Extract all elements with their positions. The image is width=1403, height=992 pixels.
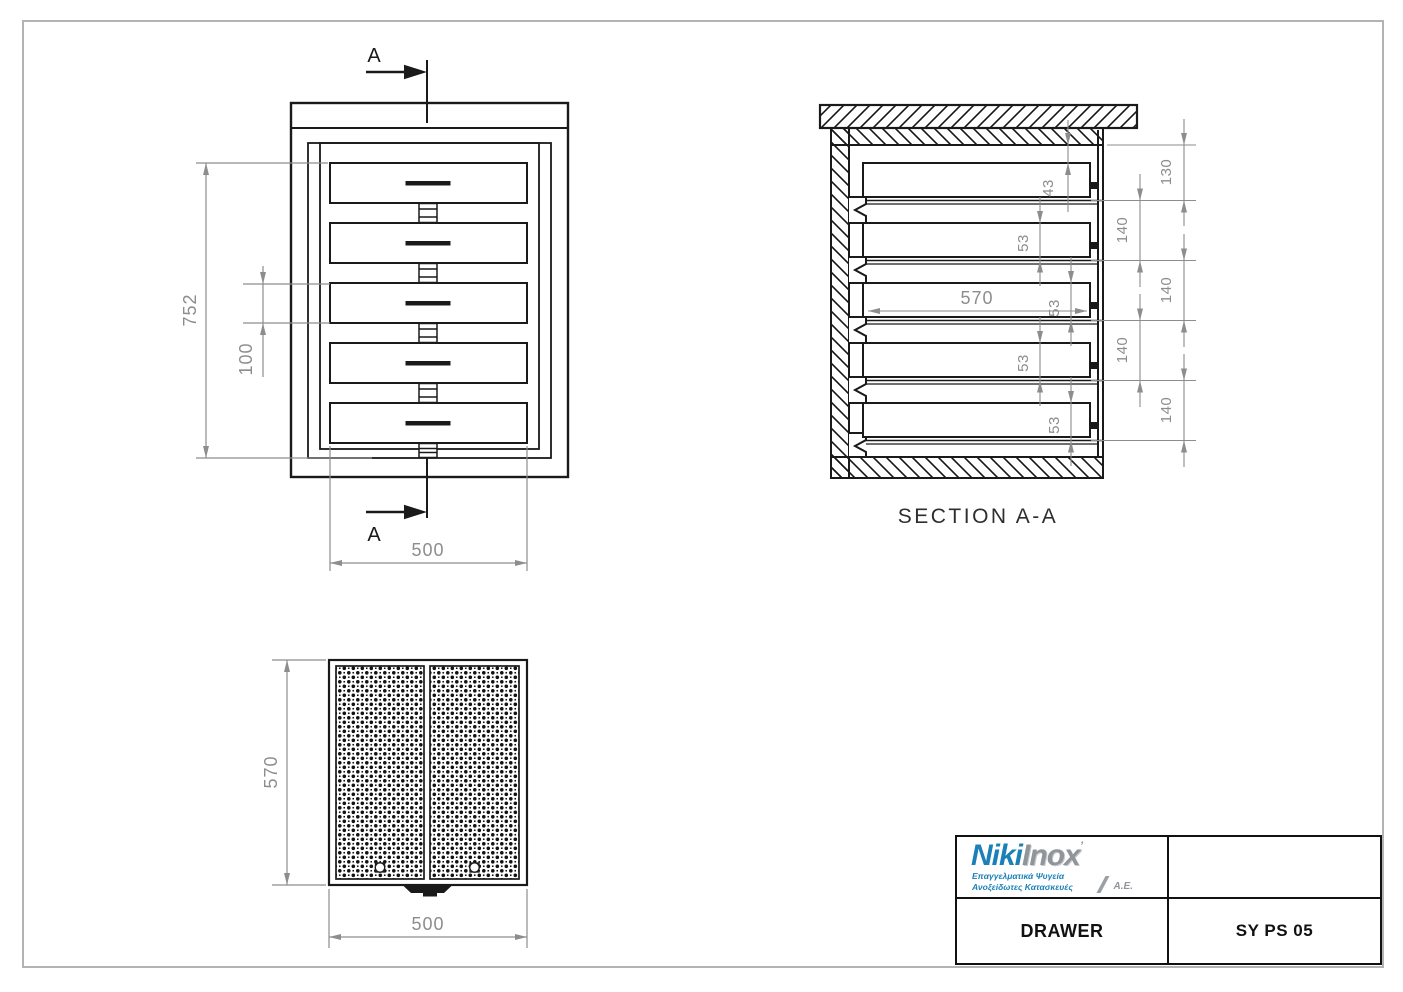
dim-pitch: 140 (1158, 277, 1175, 304)
drawer-stop (1091, 182, 1098, 189)
dim-top-depth: 570 (261, 755, 281, 788)
logo-subtitle-line1: Επαγγελματικά Ψυγεία (972, 871, 1064, 881)
cut-letter-top: A (367, 45, 381, 67)
drawing-sheet: A A 752 100 500 (0, 0, 1403, 992)
dim-drawer-height: 53 (1015, 234, 1032, 252)
section-arrow-icon (404, 505, 427, 519)
dim-drawer-height: 53 (1015, 354, 1032, 372)
dim-drawer-height: 53 (1046, 416, 1063, 434)
dim-pitch: 140 (1114, 337, 1131, 364)
drawer-handle (406, 181, 451, 186)
top-view-handle (403, 886, 452, 894)
logo-trademark: ’ (1080, 839, 1082, 853)
dim-overall-height: 752 (180, 293, 200, 326)
logo-text-niki: Niki (971, 839, 1022, 872)
drawer-handle (406, 421, 451, 426)
top-view (329, 660, 527, 897)
dim-pitch: 140 (1158, 397, 1175, 424)
drawer-handle (406, 241, 451, 246)
drawer-handle (406, 301, 451, 306)
logo-company-suffix: Α.Ε. (1114, 881, 1133, 892)
dim-top-gap: 43 (1040, 179, 1057, 197)
dim-pitch: 130 (1158, 159, 1175, 186)
logo-subtitle: Επαγγελματικά Ψυγεία Ανοξείδωτες Κατασκε… (972, 871, 1073, 892)
logo-cell: NikiInox’ Επαγγελματικά Ψυγεία Ανοξείδωτ… (957, 837, 1167, 897)
nikiinox-logo: NikiInox’ (971, 839, 1082, 873)
drawer-stop (1091, 362, 1098, 369)
cut-letter-bottom: A (367, 524, 381, 546)
title-block: NikiInox’ Επαγγελματικά Ψυγεία Ανοξείδωτ… (955, 835, 1382, 965)
section-top-wall (831, 128, 1103, 145)
section-title: SECTION A-A (898, 505, 1059, 528)
dim-drawer-height: 53 (1046, 299, 1063, 317)
perforated-panel-left (336, 666, 424, 879)
logo-text-inox: Inox (1022, 839, 1080, 872)
dim-section-depth: 570 (960, 288, 993, 308)
fastener-mark (375, 863, 384, 872)
logo-slash-icon (1096, 876, 1109, 893)
dim-pitch: 140 (1114, 217, 1131, 244)
part-code: SY PS 05 (1169, 899, 1380, 963)
logo-subtitle-line2: Ανοξείδωτες Κατασκευές (972, 882, 1073, 892)
top-view-handle-tab (423, 893, 437, 897)
part-name: DRAWER (957, 899, 1167, 963)
drawer-stop (1091, 242, 1098, 249)
fastener-mark (470, 863, 479, 872)
section-bottom-wall (831, 457, 1103, 478)
dim-top-width: 500 (411, 914, 444, 934)
section-top-panel (820, 105, 1137, 128)
section-arrow-icon (404, 65, 427, 79)
dim-drawer-front-height: 100 (236, 342, 256, 375)
section-left-wall (831, 128, 849, 478)
drawer-stop (1091, 302, 1098, 309)
drawer-handle (406, 361, 451, 366)
drawer-stop (1091, 422, 1098, 429)
dim-front-width: 500 (411, 540, 444, 560)
perforated-panel-right (430, 666, 519, 879)
